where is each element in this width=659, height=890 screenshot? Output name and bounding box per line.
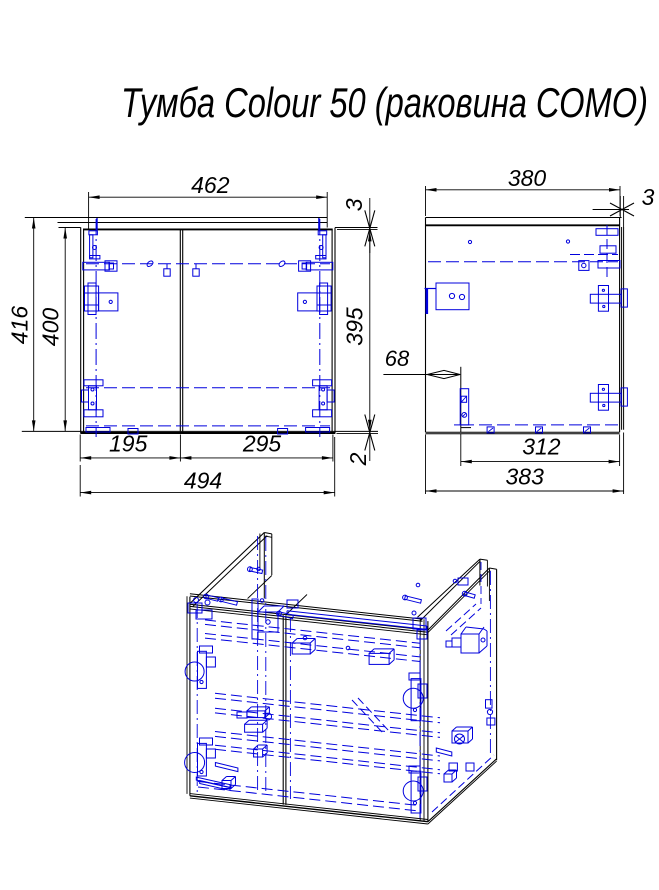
svg-text:383: 383: [506, 464, 545, 490]
svg-text:295: 295: [242, 431, 282, 457]
svg-text:395: 395: [342, 307, 368, 346]
svg-text:68: 68: [385, 346, 410, 371]
svg-text:3: 3: [642, 184, 655, 210]
svg-text:494: 494: [184, 468, 222, 494]
svg-text:462: 462: [191, 172, 230, 198]
svg-text:2: 2: [345, 452, 371, 466]
svg-text:400: 400: [38, 308, 64, 347]
svg-text:380: 380: [508, 165, 547, 191]
svg-text:3: 3: [341, 198, 367, 211]
svg-text:312: 312: [522, 433, 561, 459]
svg-text:Тумба Colour 50 (раковина СОМО: Тумба Colour 50 (раковина СОМО): [121, 79, 648, 126]
svg-text:416: 416: [7, 306, 33, 345]
